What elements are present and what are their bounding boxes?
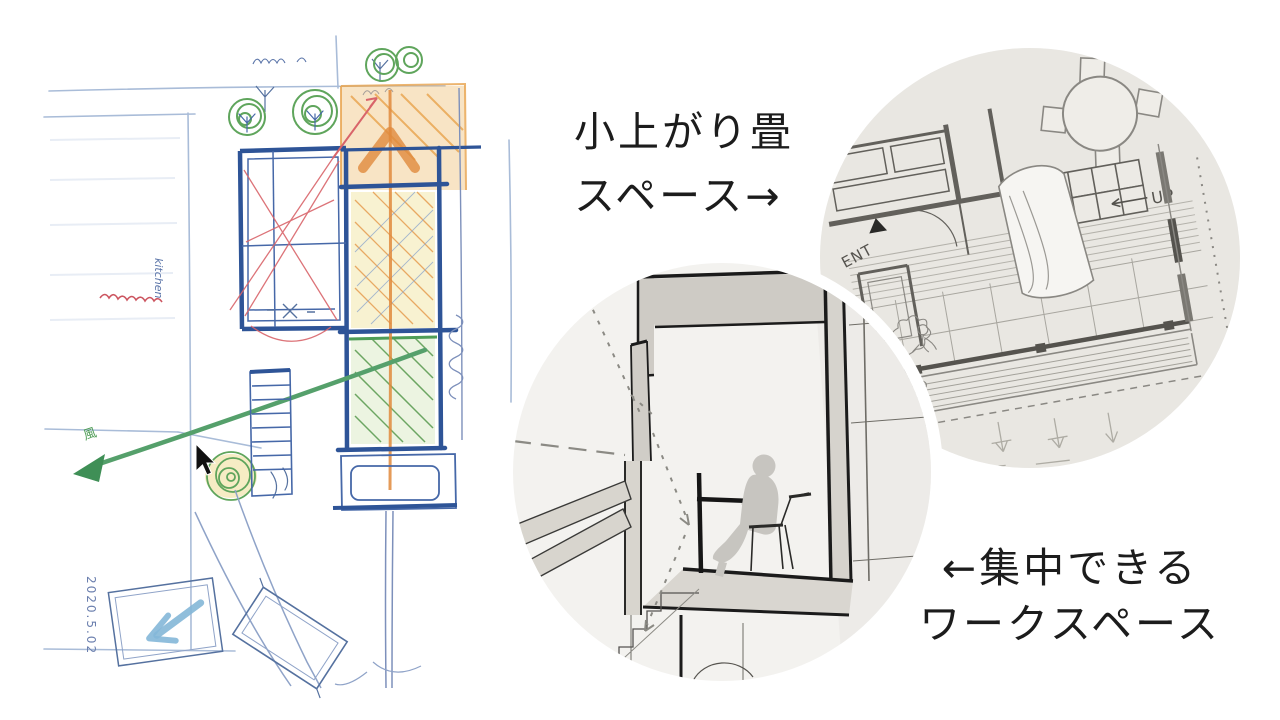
workspace-caption-line2: ワークスペース: [919, 600, 1221, 648]
tatami-caption: 小上がり畳スペース→: [574, 100, 794, 228]
section-drawing: [513, 263, 931, 681]
tatami-caption-line2: スペース→: [574, 172, 782, 220]
workspace-caption: ←集中できるワークスペース: [905, 540, 1235, 652]
workspace-caption-line1: ←集中できる: [942, 544, 1199, 592]
tatami-caption-line1: 小上がり畳: [574, 108, 794, 156]
presentation-board: kitchen: [0, 0, 1280, 720]
kitchen-note: kitchen: [152, 258, 165, 299]
section-photo-circle: [513, 263, 931, 681]
orange-zone: [341, 84, 466, 190]
hand-sketch-plan: kitchen: [35, 20, 545, 710]
date-note: 2020.5.02: [84, 576, 98, 655]
sketch-paper: [35, 20, 545, 710]
left-wall-strip: [625, 461, 641, 615]
